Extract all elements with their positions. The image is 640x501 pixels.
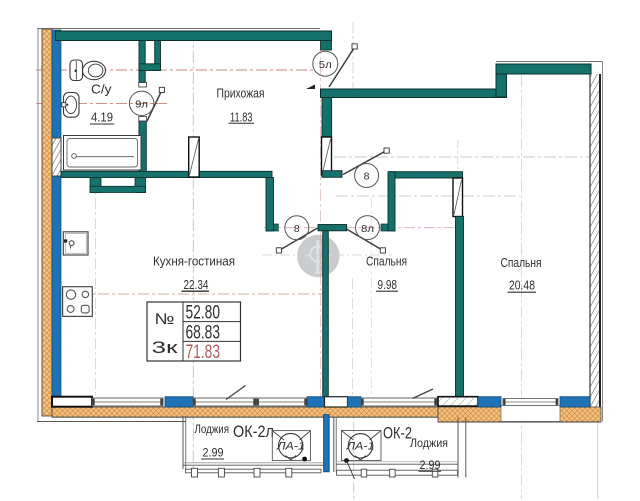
svg-text:Кухня-гостиная: Кухня-гостиная: [153, 254, 235, 269]
svg-text:2.99: 2.99: [203, 446, 224, 460]
svg-text:3к: 3к: [152, 338, 179, 357]
svg-text:9.98: 9.98: [378, 277, 398, 292]
svg-text:ЛА-1: ЛА-1: [345, 441, 374, 453]
svg-text:8: 8: [294, 223, 300, 235]
svg-text:11.83: 11.83: [230, 109, 253, 124]
svg-text:68.83: 68.83: [186, 323, 221, 344]
svg-text:8л: 8л: [361, 223, 374, 235]
svg-text:Спальня: Спальня: [366, 253, 407, 268]
svg-text:5л: 5л: [319, 59, 332, 71]
svg-text:Прихожая: Прихожая: [217, 86, 265, 101]
svg-text:С/у: С/у: [91, 82, 112, 97]
svg-text:8: 8: [364, 171, 370, 183]
svg-text:71.83: 71.83: [186, 342, 221, 363]
svg-text:№: №: [155, 311, 175, 328]
svg-text:ОК-2л: ОК-2л: [233, 423, 274, 441]
svg-text:Лоджия: Лоджия: [195, 424, 230, 436]
svg-text:20.48: 20.48: [509, 278, 535, 293]
svg-text:Лоджия: Лоджия: [410, 438, 448, 450]
svg-text:9л: 9л: [135, 99, 148, 111]
svg-text:ОК-2: ОК-2: [383, 425, 412, 443]
svg-text:4.19: 4.19: [91, 110, 113, 125]
svg-text:Спальня: Спальня: [501, 255, 542, 270]
svg-text:ЛА-1: ЛА-1: [276, 441, 305, 453]
svg-text:2.99: 2.99: [420, 458, 441, 472]
svg-text:52.80: 52.80: [186, 303, 221, 324]
svg-text:22.34: 22.34: [184, 277, 209, 292]
